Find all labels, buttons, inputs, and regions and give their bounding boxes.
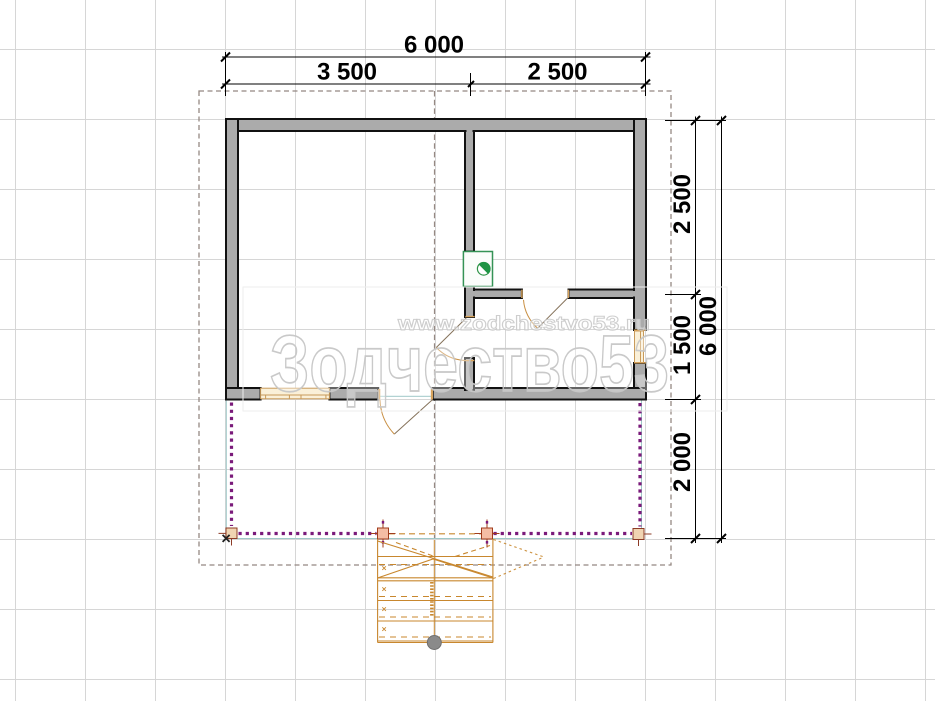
svg-text:3 500: 3 500 (317, 59, 377, 86)
svg-text:6 000: 6 000 (404, 32, 464, 59)
svg-text:1 500: 1 500 (669, 315, 696, 375)
svg-text:2 500: 2 500 (527, 59, 587, 86)
svg-text:2 000: 2 000 (669, 432, 696, 492)
svg-text:6 000: 6 000 (695, 296, 722, 356)
svg-text:2 500: 2 500 (669, 174, 696, 234)
svg-text:Зодчество53: Зодчество53 (270, 319, 669, 408)
